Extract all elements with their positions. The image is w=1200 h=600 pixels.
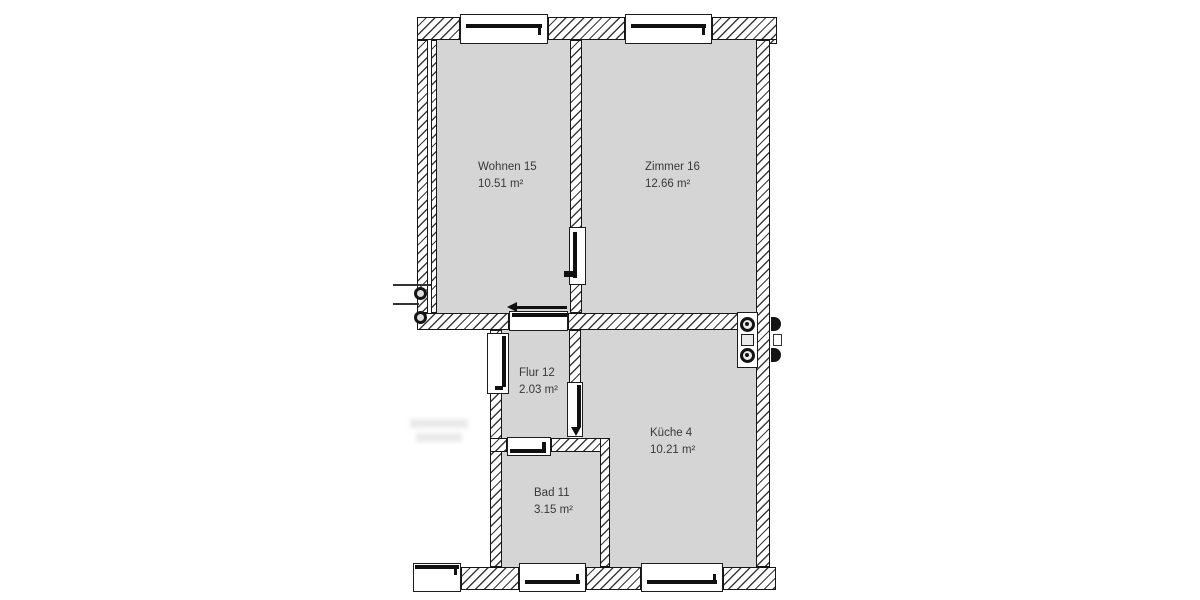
room-kueche-upper <box>581 330 756 438</box>
wall-bottom-3 <box>723 567 776 590</box>
window-top-zimmer <box>625 14 712 44</box>
wall-divider-wohnen-zimmer-upper <box>570 40 582 228</box>
window-tick <box>495 386 503 390</box>
door-leaf <box>512 313 567 317</box>
room-area: 3.15 m² <box>534 502 573 519</box>
label-flur: Flur 12 2.03 m² <box>519 365 558 399</box>
door-entry-flur <box>509 311 568 331</box>
wall-top-left <box>417 17 460 40</box>
window-bottom-bad <box>519 563 586 592</box>
label-zimmer: Zimmer 16 12.66 m² <box>645 159 700 193</box>
window-sash <box>466 24 542 28</box>
room-name: Flur 12 <box>519 365 558 382</box>
wall-bottom-1 <box>461 567 519 590</box>
label-bad: Bad 11 3.15 m² <box>534 485 573 519</box>
entry-arrow-icon <box>507 302 517 312</box>
wall-divider-wohnen-zimmer-lower <box>570 284 582 313</box>
label-kueche: Küche 4 10.21 m² <box>650 425 695 459</box>
clipped-fixture-icon <box>771 317 781 331</box>
faint-artifact <box>416 433 462 442</box>
door-leaf <box>573 232 577 278</box>
pipe-line <box>393 303 419 305</box>
pipe-riser-icon <box>414 287 427 300</box>
label-wohnen: Wohnen 15 10.51 m² <box>478 159 537 193</box>
door-wohnen-zimmer-swing-tick <box>564 271 573 277</box>
clipped-fixture-rect <box>773 334 782 346</box>
window-tick <box>702 28 705 35</box>
wall-mid-left <box>417 313 509 330</box>
clipped-fixture-icon <box>771 348 781 362</box>
window-sash <box>502 336 506 387</box>
room-area: 12.66 m² <box>645 176 700 193</box>
faint-artifact <box>410 419 468 428</box>
window-sash <box>525 580 580 584</box>
kitchen-unit-inset <box>741 334 754 346</box>
room-area: 10.21 m² <box>650 442 695 459</box>
door-swing-tick <box>542 442 546 450</box>
wall-bottom-2 <box>586 567 641 590</box>
floorplan-canvas: Wohnen 15 10.51 m² Zimmer 16 12.66 m² Fl… <box>0 0 1200 600</box>
door-swing-arrow-icon <box>571 427 581 436</box>
door-leaf <box>577 385 581 427</box>
burner-icon <box>740 348 755 363</box>
pipe-riser-icon <box>414 311 427 324</box>
window-bottom-kueche <box>641 563 723 592</box>
room-name: Wohnen 15 <box>478 159 537 176</box>
window-sash <box>415 565 459 569</box>
window-tick <box>538 28 541 35</box>
room-area: 10.51 m² <box>478 176 537 193</box>
window-top-wohnen <box>460 14 548 44</box>
entry-arrow-shaft <box>517 306 567 309</box>
window-tick <box>454 569 457 575</box>
window-sash <box>631 24 706 28</box>
wall-left-outer <box>417 40 428 313</box>
window-sash <box>647 580 717 584</box>
room-name: Zimmer 16 <box>645 159 700 176</box>
wall-mid-right <box>568 313 756 330</box>
window-tick <box>713 574 716 580</box>
door-flur-kueche <box>567 382 583 437</box>
room-name: Bad 11 <box>534 485 573 502</box>
wall-bad-right <box>600 438 610 567</box>
wall-top-mid <box>548 17 625 40</box>
door-bad <box>507 437 551 456</box>
burner-icon <box>740 317 755 332</box>
room-area: 2.03 m² <box>519 382 558 399</box>
room-name: Küche 4 <box>650 425 695 442</box>
pipe-line <box>393 284 431 286</box>
wall-left-inner <box>431 40 437 313</box>
door-leaf <box>510 449 546 453</box>
wall-bad-top-left <box>490 438 507 452</box>
wall-flur-kueche <box>569 330 581 383</box>
window-cutoff-left <box>413 563 461 592</box>
window-flur-left <box>487 333 509 394</box>
window-tick <box>576 574 579 580</box>
wall-top-right <box>712 17 777 40</box>
wall-right <box>756 40 770 567</box>
